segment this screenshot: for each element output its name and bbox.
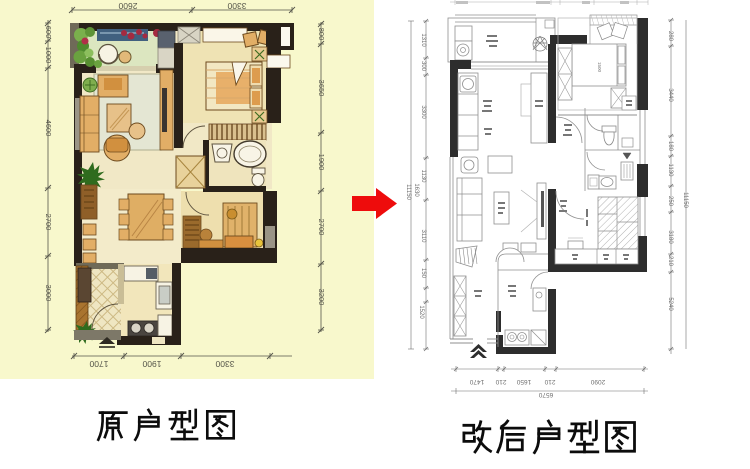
- svg-text:3440: 3440: [667, 88, 673, 102]
- svg-text:11150: 11150: [405, 184, 411, 200]
- svg-text:1130: 1130: [667, 164, 673, 178]
- svg-text:1520: 1520: [418, 305, 424, 319]
- svg-text:6570: 6570: [538, 391, 553, 398]
- svg-text:1700: 1700: [89, 359, 108, 369]
- svg-text:600: 600: [44, 26, 53, 39]
- svg-text:2700: 2700: [317, 219, 326, 236]
- svg-text:150: 150: [420, 268, 426, 279]
- svg-text:800: 800: [317, 28, 326, 41]
- svg-text:2700: 2700: [44, 214, 53, 231]
- svg-text:2090: 2090: [590, 378, 605, 385]
- svg-text:3300: 3300: [215, 359, 234, 369]
- svg-text:5240: 5240: [667, 297, 673, 311]
- svg-text:280: 280: [667, 31, 673, 42]
- svg-text:3110: 3110: [420, 230, 426, 244]
- svg-text:1310: 1310: [420, 33, 426, 47]
- svg-text:3000: 3000: [44, 285, 53, 302]
- svg-text:1650: 1650: [516, 378, 531, 385]
- svg-text:3650: 3650: [317, 80, 326, 97]
- svg-text:3200: 3200: [317, 289, 326, 306]
- svg-text:2600: 2600: [118, 1, 137, 11]
- svg-text:210: 210: [544, 378, 555, 385]
- svg-text:300: 300: [420, 61, 426, 72]
- svg-text:1630: 1630: [413, 183, 419, 197]
- svg-text:4600: 4600: [44, 120, 53, 137]
- svg-text:210: 210: [495, 378, 506, 385]
- svg-text:3300: 3300: [420, 105, 426, 119]
- svg-text:1900: 1900: [142, 359, 161, 369]
- svg-text:3300: 3300: [227, 1, 246, 11]
- svg-text:11150: 11150: [682, 192, 688, 208]
- svg-text:3180: 3180: [667, 230, 673, 244]
- svg-text:1900: 1900: [317, 154, 326, 171]
- svg-text:1000: 1000: [44, 47, 53, 64]
- svg-text:1500: 1500: [597, 62, 602, 73]
- svg-text:210: 210: [667, 256, 673, 267]
- svg-text:180: 180: [667, 141, 673, 152]
- svg-text:1470: 1470: [469, 378, 484, 385]
- svg-text:1130: 1130: [420, 170, 426, 184]
- svg-text:250: 250: [667, 196, 673, 207]
